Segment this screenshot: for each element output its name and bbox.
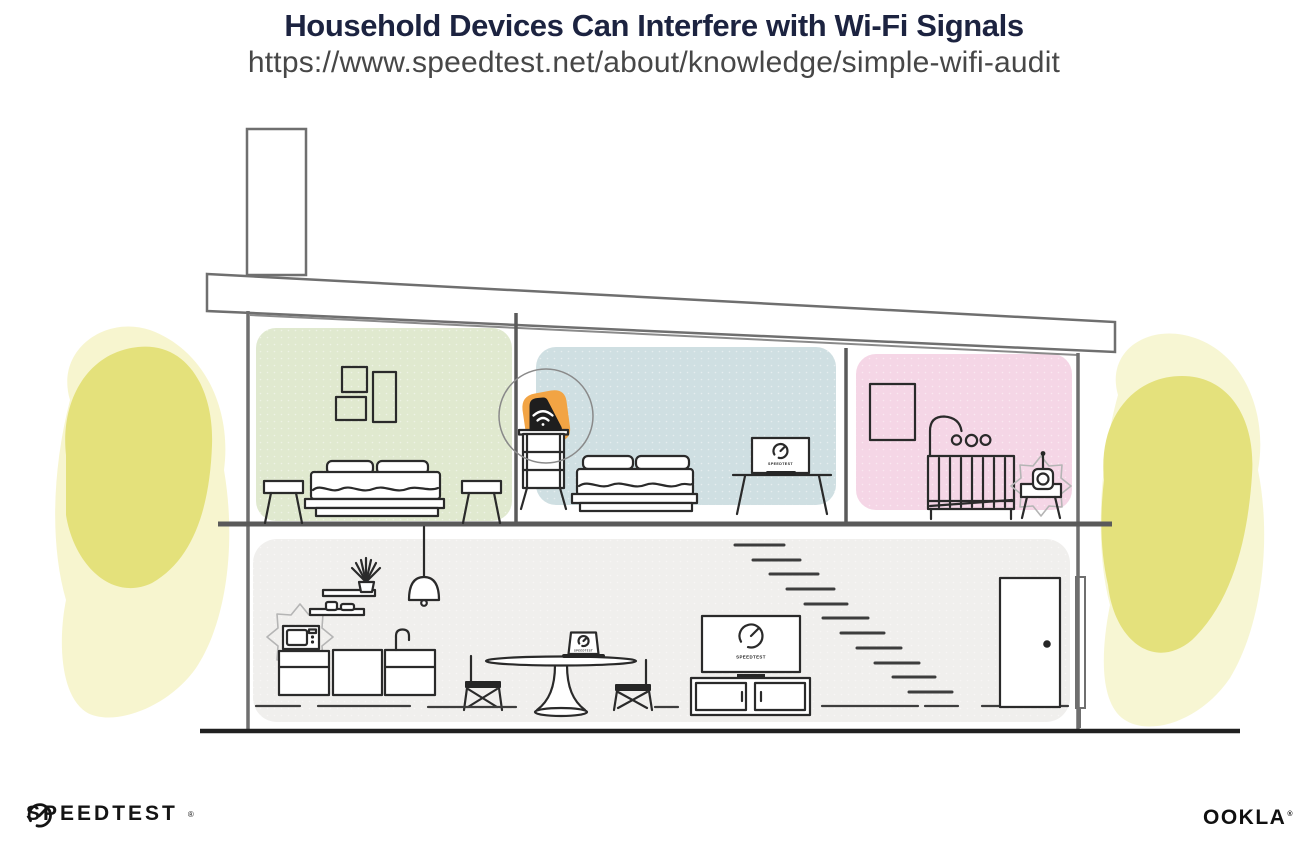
house-illustration: SPEEDTEST bbox=[0, 0, 1308, 861]
registered-mark: ® bbox=[1287, 811, 1294, 818]
table-top bbox=[486, 657, 636, 666]
chimney bbox=[247, 129, 306, 275]
speedtest-logo: SPEEDTEST® bbox=[26, 802, 194, 826]
door-knob bbox=[1043, 640, 1051, 648]
ookla-logo: OOKLA® bbox=[1203, 806, 1294, 830]
baby-monitor bbox=[1033, 469, 1053, 489]
front-door bbox=[1000, 578, 1060, 707]
left-tree bbox=[55, 326, 229, 717]
bowl bbox=[341, 604, 354, 610]
microwave bbox=[283, 626, 319, 649]
table-base bbox=[535, 708, 587, 716]
bowl bbox=[326, 602, 337, 610]
pillow bbox=[636, 456, 689, 469]
mattress bbox=[311, 472, 440, 499]
floor-shadow-segments bbox=[256, 706, 1068, 707]
laptop-screen-label: SPEEDTEST bbox=[574, 649, 593, 653]
tv-screen-label: SPEEDTEST bbox=[736, 655, 766, 660]
tv: SPEEDTEST bbox=[702, 616, 800, 678]
tv-console bbox=[691, 678, 810, 715]
laptop-screen-label: SPEEDTEST bbox=[768, 462, 793, 466]
mattress bbox=[577, 469, 693, 495]
tv-area: SPEEDTEST bbox=[691, 616, 810, 715]
bedroom-laptop: SPEEDTEST bbox=[752, 438, 809, 476]
infographic-canvas: Household Devices Can Interfere with Wi-… bbox=[0, 0, 1308, 861]
speedtest-gauge-icon bbox=[26, 802, 54, 830]
pillow bbox=[583, 456, 633, 469]
registered-mark: ® bbox=[188, 810, 194, 819]
right-tree bbox=[1101, 333, 1264, 726]
ookla-wordmark: OOKLA bbox=[1203, 806, 1286, 829]
